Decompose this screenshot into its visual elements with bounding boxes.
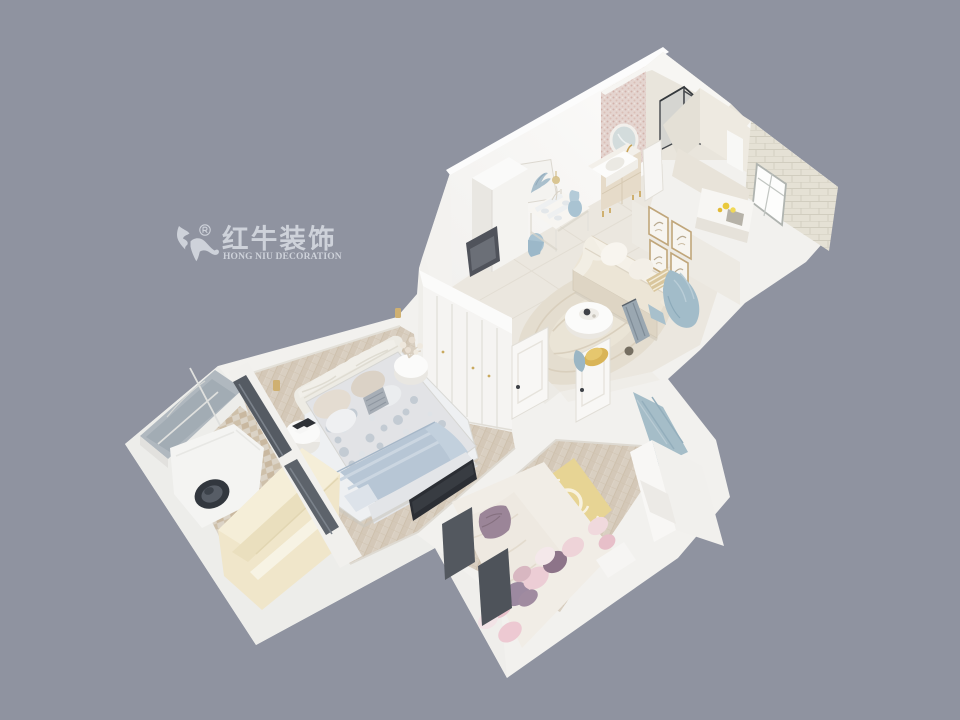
svg-text:红牛装饰: 红牛装饰 — [222, 224, 337, 254]
svg-text:HONG NIU DECORATION: HONG NIU DECORATION — [223, 252, 342, 262]
